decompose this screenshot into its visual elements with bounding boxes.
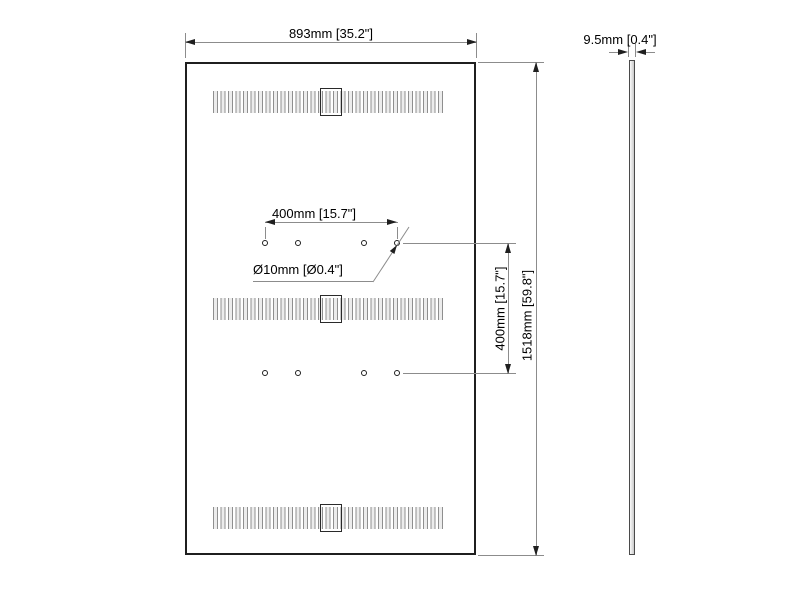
vesa-height-extension-top	[403, 243, 516, 244]
hole-diameter-leader	[368, 218, 414, 288]
thickness-dim-label: 9.5mm [0.4"]	[545, 32, 695, 47]
vesa-height-dim-label: 400mm [15.7"]	[493, 249, 508, 369]
mounting-hole-bottom-3	[361, 370, 367, 376]
vent-center-marker-top	[320, 88, 342, 116]
height-dim-line	[536, 62, 537, 556]
width-dim-label: 893mm [35.2"]	[231, 26, 431, 41]
vent-center-marker-bottom	[320, 504, 342, 532]
hole-diameter-leader-underline	[253, 281, 373, 282]
thickness-arrow-left	[618, 49, 628, 55]
mounting-hole-top-3	[361, 240, 367, 246]
mounting-hole-bottom-1	[262, 370, 268, 376]
width-dim-arrow-right	[467, 39, 477, 45]
width-dim-extension-right	[476, 33, 477, 58]
width-dim-line	[185, 42, 477, 43]
vesa-width-extension-left	[265, 227, 266, 239]
thickness-arrow-tail-right	[646, 52, 655, 53]
vent-center-marker-middle	[320, 295, 342, 323]
panel-side-view	[629, 60, 635, 555]
mounting-hole-top-1	[262, 240, 268, 246]
mounting-hole-top-2	[295, 240, 301, 246]
hole-diameter-label: Ø10mm [Ø0.4"]	[253, 262, 343, 277]
height-dim-label: 1518mm [59.8"]	[520, 246, 535, 386]
mounting-hole-bottom-2	[295, 370, 301, 376]
thickness-arrow-tail-left	[609, 52, 618, 53]
technical-drawing-canvas: 893mm [35.2"] 400mm [15.7"] Ø10mm [Ø0.4"…	[0, 0, 800, 600]
height-dim-arrow-top	[533, 62, 539, 72]
vesa-height-extension-bottom	[403, 373, 516, 374]
height-dim-arrow-bottom	[533, 546, 539, 556]
vesa-height-dim-line	[508, 243, 509, 374]
width-dim-extension-left	[185, 33, 186, 58]
thickness-arrow-right	[636, 49, 646, 55]
width-dim-arrow-left	[185, 39, 195, 45]
mounting-hole-bottom-4	[394, 370, 400, 376]
